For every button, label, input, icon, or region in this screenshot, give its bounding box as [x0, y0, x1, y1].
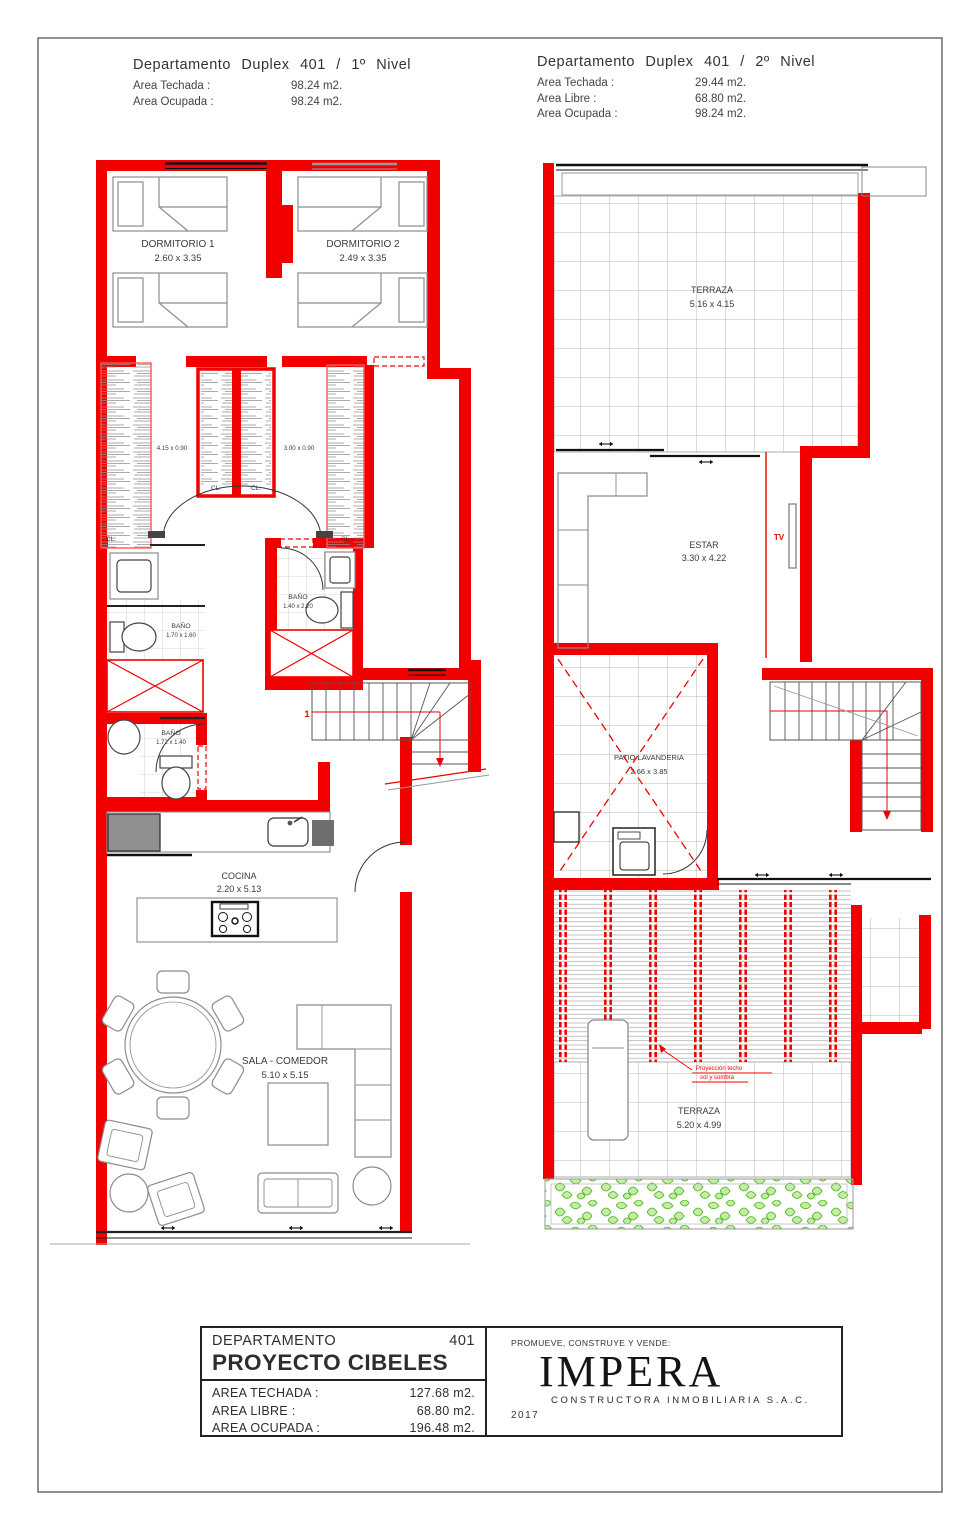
- floor-plan-drawing: DORMITORIO 1 2.60 x 3.35 DORMITORIO 2 2.…: [0, 0, 980, 1532]
- pergola-annotation-line2: sol y sombra: [700, 1075, 735, 1081]
- planter: [545, 1179, 853, 1229]
- label-dormitorio2: DORMITORIO 2: [326, 239, 400, 250]
- title-block-areas: AREA TECHADA : 127.68 m2. AREA LIBRE : 6…: [202, 1381, 485, 1442]
- unit-number: 401: [449, 1333, 475, 1349]
- label-sala: SALA - COMEDOR: [242, 1056, 328, 1067]
- departamento-label: DEPARTAMENTO: [212, 1333, 336, 1349]
- drawing-sheet: DORMITORIO 1 2.60 x 3.35 DORMITORIO 2 2.…: [0, 0, 980, 1532]
- label-bano2: BAÑO: [288, 592, 307, 601]
- area-techada-total-label: AREA TECHADA :: [212, 1385, 363, 1403]
- dims-sala: 5.10 x 5.15: [261, 1070, 308, 1081]
- area-ocupada-label: Area Ocupada :: [537, 107, 695, 123]
- stairs-level2: [770, 682, 921, 830]
- dims-terraza-top: 5.16 x 4.15: [690, 299, 735, 309]
- header-level1: Departamento Duplex 401 / 1º Nivel Area …: [133, 57, 411, 110]
- header-row: Area Ocupada : 98.24 m2.: [537, 107, 815, 123]
- area-row: AREA LIBRE : 68.80 m2.: [212, 1403, 475, 1421]
- closet-label-2: CL.: [211, 485, 221, 492]
- area-libre-value: 68.80 m2.: [695, 92, 746, 108]
- dims-dormitorio1: 2.60 x 3.35: [154, 253, 201, 264]
- label-terraza-bottom: TERRAZA: [678, 1106, 720, 1116]
- brand-year: 2017: [511, 1410, 841, 1421]
- area-libre-total-label: AREA LIBRE :: [212, 1403, 363, 1421]
- tv-label: TV: [774, 533, 785, 542]
- area-techada-label: Area Techada :: [133, 79, 291, 95]
- dims-estar: 3.30 x 4.22: [682, 553, 727, 563]
- brand-logo-text: IMPERA: [539, 1350, 841, 1394]
- title-block: DEPARTAMENTO 401 PROYECTO CIBELES AREA T…: [200, 1326, 843, 1437]
- area-techada-value: 98.24 m2.: [291, 79, 342, 95]
- dims-patio: 2.66 x 3.85: [630, 767, 667, 776]
- deck-rail: [717, 873, 931, 884]
- brand-subtitle: CONSTRUCTORA INMOBILIARIA S.A.C.: [551, 1395, 841, 1406]
- area-libre-label: Area Libre :: [537, 92, 695, 108]
- dims-dormitorio2: 2.49 x 3.35: [339, 253, 386, 264]
- area-ocupada-label: Area Ocupada :: [133, 95, 291, 111]
- area-row: AREA OCUPADA : 196.48 m2.: [212, 1420, 475, 1438]
- area-libre-total-value: 68.80 m2.: [363, 1403, 475, 1421]
- dims-bano2: 1.40 x 2.20: [283, 604, 313, 610]
- area-ocupada-total-value: 196.48 m2.: [363, 1420, 475, 1438]
- dims-bano1: 1.70 x 1.60: [166, 633, 196, 639]
- label-cocina: COCINA: [221, 871, 256, 881]
- header-row: Area Techada : 29.44 m2.: [537, 76, 815, 92]
- header-level2: Departamento Duplex 401 / 2º Nivel Area …: [537, 54, 815, 123]
- header-row: Area Techada : 98.24 m2.: [133, 79, 411, 95]
- header-row: Area Ocupada : 98.24 m2.: [133, 95, 411, 111]
- closet-left-dims: 4.15 x 0.90: [157, 445, 188, 452]
- label-bano1: BAÑO: [171, 621, 190, 630]
- title-block-brand: PROMUEVE, CONSTRUYE Y VENDE: IMPERA CONS…: [487, 1326, 843, 1437]
- label-estar: ESTAR: [689, 540, 719, 550]
- title-block-project: DEPARTAMENTO 401 PROYECTO CIBELES: [202, 1328, 485, 1381]
- sala-furniture: [97, 971, 391, 1226]
- closet-label-1: CL.: [106, 536, 116, 543]
- area-techada-label: Area Techada :: [537, 76, 695, 92]
- closet-label-3: CL.: [251, 485, 261, 492]
- pergola-annotation-line1: Proyección techo: [696, 1066, 743, 1072]
- area-row: AREA TECHADA : 127.68 m2.: [212, 1385, 475, 1403]
- project-name: PROYECTO CIBELES: [212, 1350, 475, 1376]
- stair-number: 1: [304, 709, 309, 719]
- dims-cocina: 2.20 x 5.13: [217, 884, 262, 894]
- estar-furniture: [558, 452, 796, 658]
- dims-terraza-bottom: 5.20 x 4.99: [677, 1120, 722, 1130]
- level1-plan: [50, 160, 489, 1245]
- lounge-chair: [588, 1020, 628, 1140]
- dims-bano3: 1.72 x 1.40: [156, 740, 186, 746]
- header-level2-title: Departamento Duplex 401 / 2º Nivel: [537, 54, 815, 70]
- title-block-left: DEPARTAMENTO 401 PROYECTO CIBELES AREA T…: [200, 1326, 487, 1437]
- area-techada-value: 29.44 m2.: [695, 76, 746, 92]
- closet-label-4: CL.: [341, 536, 351, 543]
- header-row: Area Libre : 68.80 m2.: [537, 92, 815, 108]
- label-dormitorio1: DORMITORIO 1: [141, 239, 215, 250]
- closets: [101, 363, 364, 548]
- closet-right-dims: 3.00 x 0.90: [284, 445, 315, 452]
- area-ocupada-total-label: AREA OCUPADA :: [212, 1420, 363, 1438]
- label-bano3: BAÑO: [161, 728, 180, 737]
- terraza-top-rail: [556, 165, 926, 196]
- area-ocupada-value: 98.24 m2.: [695, 107, 746, 123]
- label-terraza-top: TERRAZA: [691, 285, 733, 295]
- area-techada-total-value: 127.68 m2.: [363, 1385, 475, 1403]
- label-patio: PATIO LAVANDERIA: [614, 753, 684, 762]
- area-ocupada-value: 98.24 m2.: [291, 95, 342, 111]
- header-level1-title: Departamento Duplex 401 / 1º Nivel: [133, 57, 411, 73]
